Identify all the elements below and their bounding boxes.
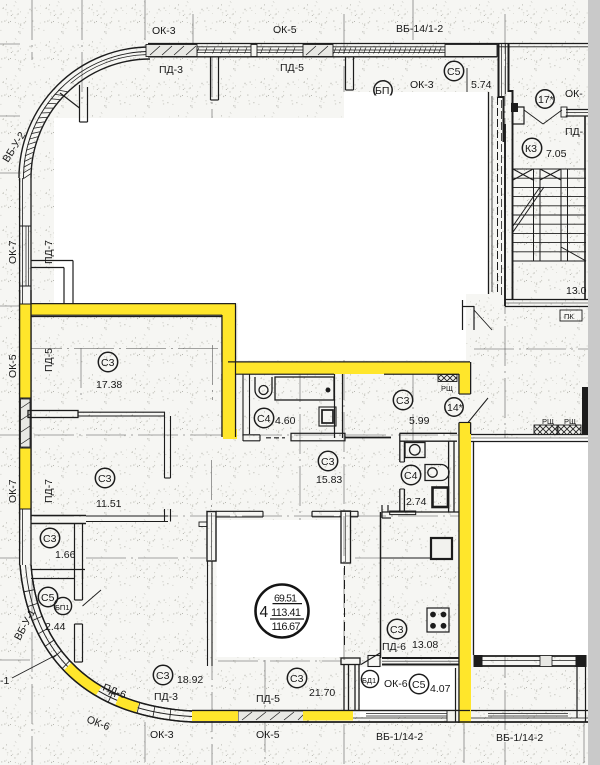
svg-text:ПД-: ПД- xyxy=(565,126,584,138)
svg-text:БП: БП xyxy=(375,85,389,97)
svg-text:РЩ: РЩ xyxy=(564,417,576,426)
svg-text:РЩ: РЩ xyxy=(542,417,554,426)
svg-text:ПД-5: ПД-5 xyxy=(256,693,280,705)
svg-text:С4: С4 xyxy=(257,413,271,425)
svg-text:С5: С5 xyxy=(412,679,426,691)
svg-text:ПД-5: ПД-5 xyxy=(280,62,304,74)
svg-text:ПД-3: ПД-3 xyxy=(154,691,178,703)
svg-text:С3: С3 xyxy=(156,670,170,682)
svg-text:11.51: 11.51 xyxy=(96,498,122,510)
svg-text:5.99: 5.99 xyxy=(409,415,430,427)
svg-text:БП1: БП1 xyxy=(55,603,69,612)
svg-text:ОК-3: ОК-3 xyxy=(152,25,176,37)
svg-text:ПД-7: ПД-7 xyxy=(43,240,55,264)
svg-text:17*: 17* xyxy=(538,94,554,106)
svg-text:15.83: 15.83 xyxy=(316,474,342,486)
svg-text:С4: С4 xyxy=(404,470,418,482)
svg-text:7.05: 7.05 xyxy=(546,148,567,160)
svg-text:21.70: 21.70 xyxy=(309,687,335,699)
svg-text:5.74: 5.74 xyxy=(471,79,492,91)
svg-text:К3: К3 xyxy=(525,143,537,155)
svg-text:ПД-6: ПД-6 xyxy=(382,641,406,653)
svg-text:ОК-6: ОК-6 xyxy=(384,678,408,690)
svg-text:ОК-7: ОК-7 xyxy=(7,479,19,503)
svg-text:ВБ-1/14-2: ВБ-1/14-2 xyxy=(376,731,423,743)
svg-text:С3: С3 xyxy=(390,624,404,636)
svg-text:БД1: БД1 xyxy=(362,676,376,685)
svg-text:2.74: 2.74 xyxy=(406,496,427,508)
svg-text:2.44: 2.44 xyxy=(45,621,66,633)
svg-text:С5: С5 xyxy=(447,66,461,78)
svg-text:ОК-5: ОК-5 xyxy=(273,24,297,36)
svg-text:ОК-3: ОК-3 xyxy=(150,729,174,741)
svg-text:1.66: 1.66 xyxy=(55,549,76,561)
svg-text:18.92: 18.92 xyxy=(177,674,203,686)
svg-text:С3: С3 xyxy=(98,473,112,485)
svg-text:14*: 14* xyxy=(447,402,463,414)
svg-text:ПД-3: ПД-3 xyxy=(159,64,183,76)
svg-text:13.0: 13.0 xyxy=(566,285,587,297)
svg-text:ОК-3: ОК-3 xyxy=(410,79,434,91)
svg-text:4.60: 4.60 xyxy=(275,415,296,427)
svg-text:69.51: 69.51 xyxy=(274,593,297,605)
svg-text:13.08: 13.08 xyxy=(412,639,438,651)
svg-text:С3: С3 xyxy=(290,673,304,685)
svg-text:РЩ: РЩ xyxy=(441,384,453,393)
svg-text:113.41: 113.41 xyxy=(271,607,301,619)
svg-text:С3: С3 xyxy=(321,456,335,468)
svg-text:ОК-: ОК- xyxy=(565,88,583,100)
svg-text:116.67: 116.67 xyxy=(272,621,301,633)
svg-text:ОК-5: ОК-5 xyxy=(7,354,19,378)
svg-text:ВБ-14/1-2: ВБ-14/1-2 xyxy=(396,23,443,35)
svg-text:ПД-5: ПД-5 xyxy=(43,348,55,372)
svg-text:ОК-7: ОК-7 xyxy=(7,240,19,264)
svg-text:С3: С3 xyxy=(101,357,115,369)
svg-text:4: 4 xyxy=(260,604,269,621)
svg-text:4.07: 4.07 xyxy=(430,683,451,695)
svg-text:ВБ-1/14-2: ВБ-1/14-2 xyxy=(496,732,543,744)
svg-text:С3: С3 xyxy=(396,395,410,407)
svg-text:ПК: ПК xyxy=(564,312,574,321)
svg-text:С3: С3 xyxy=(43,533,57,545)
svg-text:17.38: 17.38 xyxy=(96,379,122,391)
svg-text:-1: -1 xyxy=(0,675,9,687)
svg-text:ОК-5: ОК-5 xyxy=(256,729,280,741)
svg-text:ПД-7: ПД-7 xyxy=(43,479,55,503)
svg-text:С5: С5 xyxy=(41,592,55,604)
